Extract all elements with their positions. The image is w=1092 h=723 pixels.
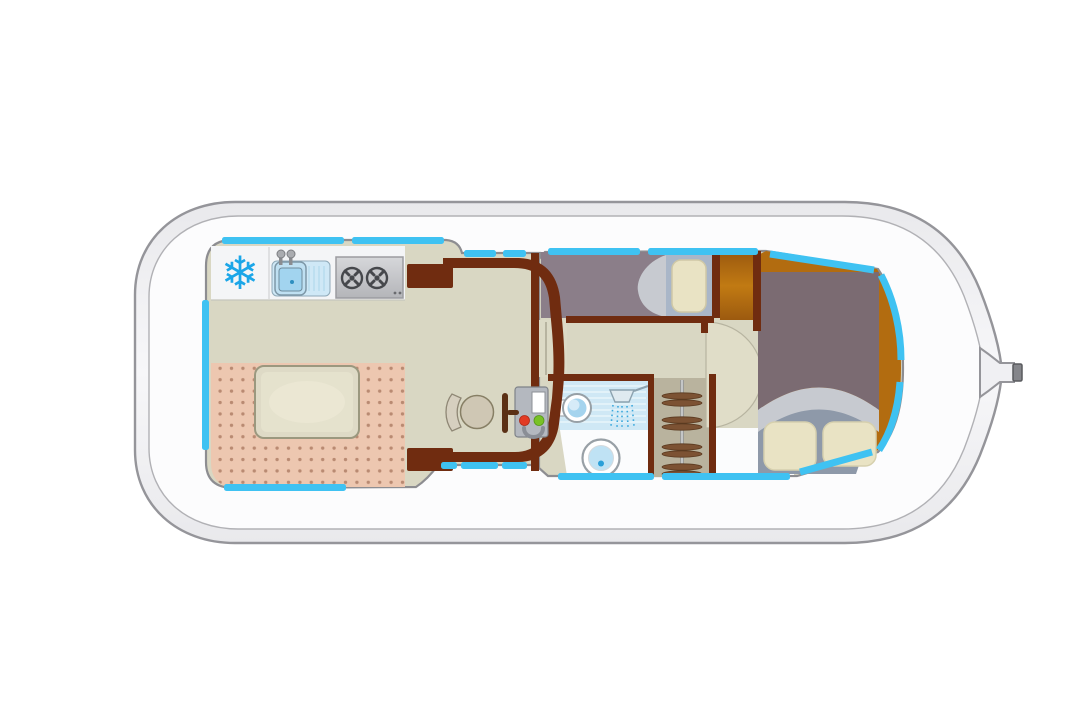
toilet-bowl: [589, 446, 614, 471]
stove-burner: [367, 268, 387, 288]
faucet-knob: [287, 250, 295, 258]
wardrobe-side-wall: [709, 374, 716, 477]
berth-end-wall: [712, 251, 720, 318]
dinette-table: [255, 366, 359, 438]
bow-fitting-tip: [1013, 364, 1022, 381]
green-button: [534, 416, 544, 426]
bathroom-side-wall: [648, 374, 654, 477]
washbasin-highlight: [569, 400, 580, 411]
red-button: [520, 416, 530, 426]
door-post: [701, 322, 708, 333]
single-berth: [541, 252, 712, 318]
helm-seat-cushion: [461, 396, 494, 429]
double-bed-pillow: [764, 422, 816, 470]
shower-head-icon: [610, 390, 634, 402]
bathroom: [553, 380, 648, 477]
console-screen: [532, 392, 545, 413]
boat-floor-plan: ❄: [0, 0, 1092, 723]
fore-cabin-wall: [753, 251, 761, 331]
floor-plan-canvas: ❄: [0, 0, 1092, 723]
sink-drain: [290, 280, 294, 284]
faucet-knob: [277, 250, 285, 258]
stove: [336, 257, 403, 298]
berth-wall: [566, 316, 714, 323]
helm-seat: [446, 394, 494, 431]
fore-cabin-floor-strip: [720, 252, 753, 320]
helm-console: [515, 387, 548, 437]
wardrobe: [654, 378, 710, 477]
single-berth-pillow: [672, 260, 706, 312]
stove-burner: [342, 268, 362, 288]
stove-knob: [394, 292, 397, 295]
toilet-drain: [598, 461, 604, 467]
freezer-icon: ❄: [221, 246, 260, 300]
stove-knob: [399, 292, 402, 295]
double-bed: [758, 272, 879, 474]
